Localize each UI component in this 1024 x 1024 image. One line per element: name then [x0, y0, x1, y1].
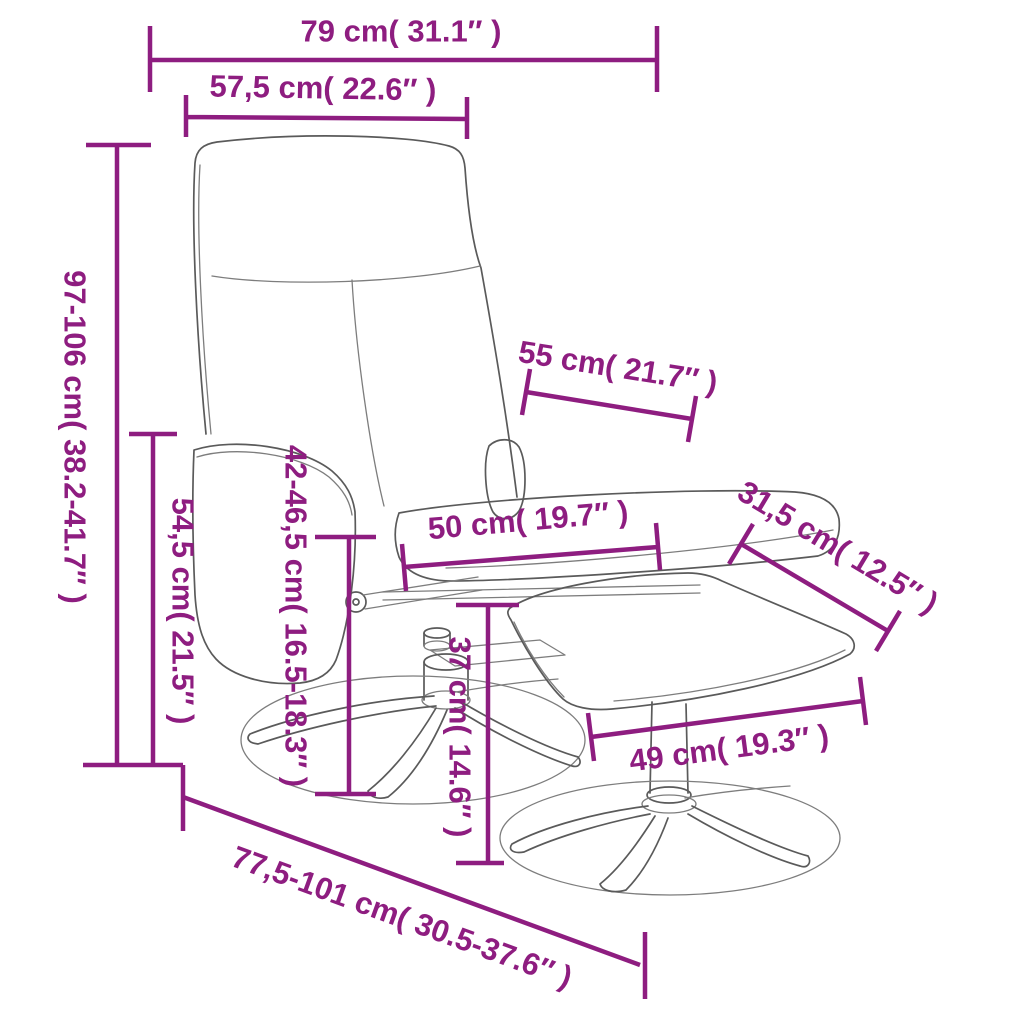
dim-label-backrest-width: 57,5 cm( 22.6″ ): [209, 71, 436, 106]
dim-label-footstool-height: 37 cm( 14.6″ ): [445, 637, 476, 838]
dim-line-seat-height: [315, 537, 376, 794]
backrest: [194, 136, 517, 506]
dimension-diagram: 79 cm( 31.1″ ) 57,5 cm( 22.6″ ) 97-106 c…: [0, 0, 1024, 1024]
left-armrest: [193, 444, 355, 683]
dim-line-overall-height: [83, 145, 183, 831]
dim-label-overall-width: 79 cm( 31.1″ ): [301, 16, 502, 47]
recline-mechanism: [346, 577, 700, 666]
dim-label-armrest-height: 54,5 cm( 21.5″ ): [168, 498, 199, 725]
dim-label-seat-height: 42-46,5 cm( 16.5-18.3″ ): [281, 445, 312, 787]
footstool-base: [500, 781, 840, 895]
dim-line-overall-depth: [183, 797, 645, 999]
dim-label-overall-height: 97-106 cm( 38.2-41.7″ ): [60, 270, 91, 604]
